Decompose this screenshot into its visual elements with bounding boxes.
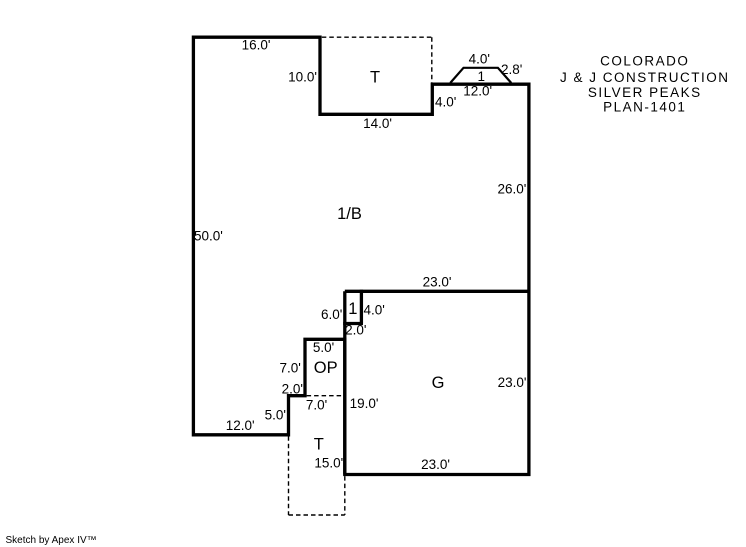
svg-text:OP: OP — [314, 359, 338, 377]
svg-text:2.0': 2.0' — [282, 381, 303, 396]
svg-text:26.0': 26.0' — [497, 181, 526, 196]
svg-text:7.0': 7.0' — [306, 397, 327, 412]
svg-text:J & J CONSTRUCTION: J & J CONSTRUCTION — [560, 70, 730, 85]
svg-text:PLAN-1401: PLAN-1401 — [603, 100, 686, 115]
svg-text:Sketch by Apex IV™: Sketch by Apex IV™ — [6, 535, 97, 546]
svg-text:23.0': 23.0' — [423, 274, 452, 289]
svg-text:2.8': 2.8' — [501, 62, 522, 77]
svg-text:1: 1 — [478, 69, 486, 84]
svg-text:50.0': 50.0' — [194, 229, 223, 244]
svg-text:5.0': 5.0' — [313, 340, 334, 355]
svg-text:12.0': 12.0' — [226, 418, 255, 433]
svg-text:23.0': 23.0' — [421, 457, 450, 472]
svg-text:14.0': 14.0' — [363, 116, 392, 131]
svg-text:T: T — [314, 435, 324, 453]
svg-text:19.0': 19.0' — [350, 396, 379, 411]
svg-text:4.0': 4.0' — [364, 303, 385, 318]
svg-text:7.0': 7.0' — [279, 361, 300, 376]
svg-text:16.0': 16.0' — [242, 38, 271, 53]
svg-text:6.0': 6.0' — [321, 307, 342, 322]
svg-text:10.0': 10.0' — [288, 70, 317, 85]
svg-text:SILVER PEAKS: SILVER PEAKS — [588, 85, 702, 100]
svg-text:2.0': 2.0' — [345, 323, 366, 338]
svg-text:23.0': 23.0' — [498, 375, 527, 390]
svg-text:COLORADO: COLORADO — [600, 54, 689, 69]
svg-text:4.0': 4.0' — [435, 95, 456, 110]
svg-text:1: 1 — [348, 300, 357, 318]
svg-text:4.0': 4.0' — [469, 51, 490, 66]
svg-text:G: G — [432, 374, 445, 392]
svg-text:15.0': 15.0' — [314, 456, 343, 471]
svg-text:12.0': 12.0' — [463, 83, 492, 98]
svg-text:5.0': 5.0' — [265, 408, 286, 423]
svg-text:T: T — [370, 68, 380, 86]
svg-text:1/B: 1/B — [337, 205, 362, 223]
